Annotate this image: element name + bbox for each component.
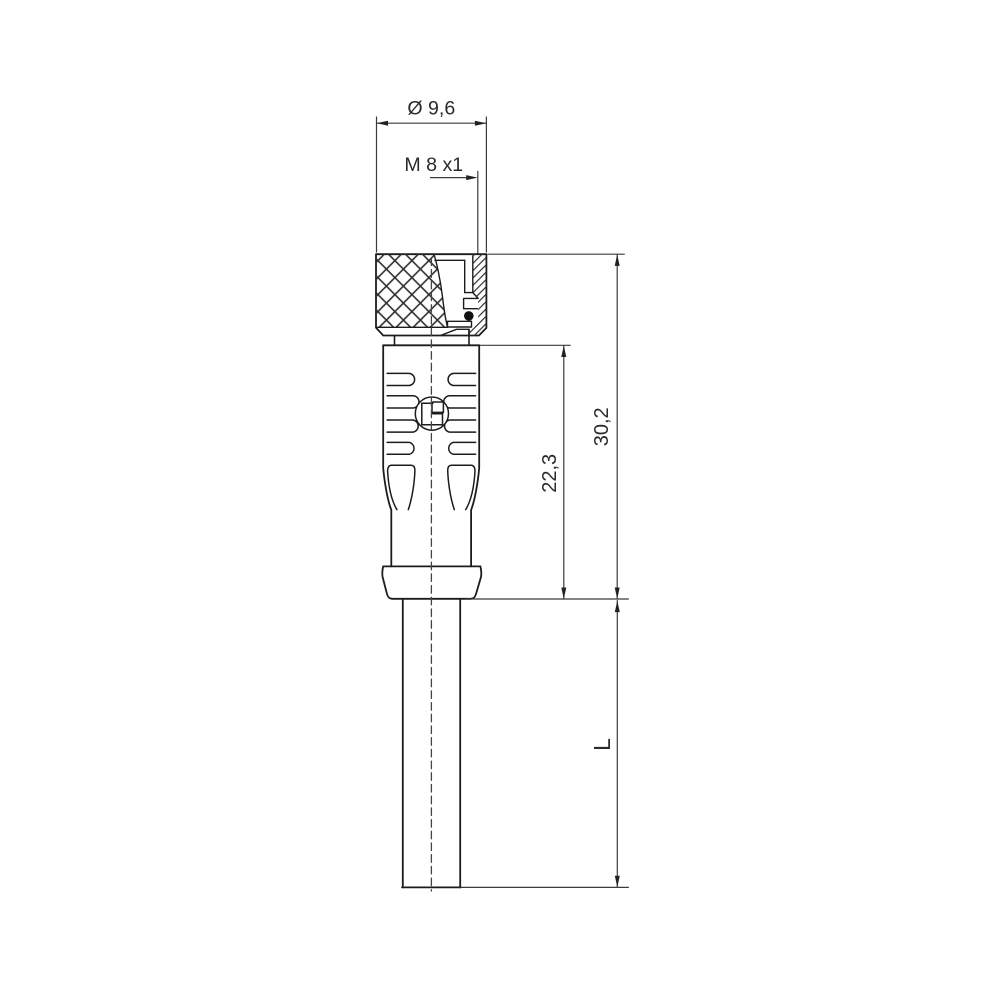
svg-text:Ø 9,6: Ø 9,6 [407,98,455,120]
svg-text:L: L [589,738,615,751]
svg-text:M 8 x1: M 8 x1 [404,154,463,176]
svg-text:30,2: 30,2 [591,407,613,446]
svg-text:22,3: 22,3 [539,454,561,493]
